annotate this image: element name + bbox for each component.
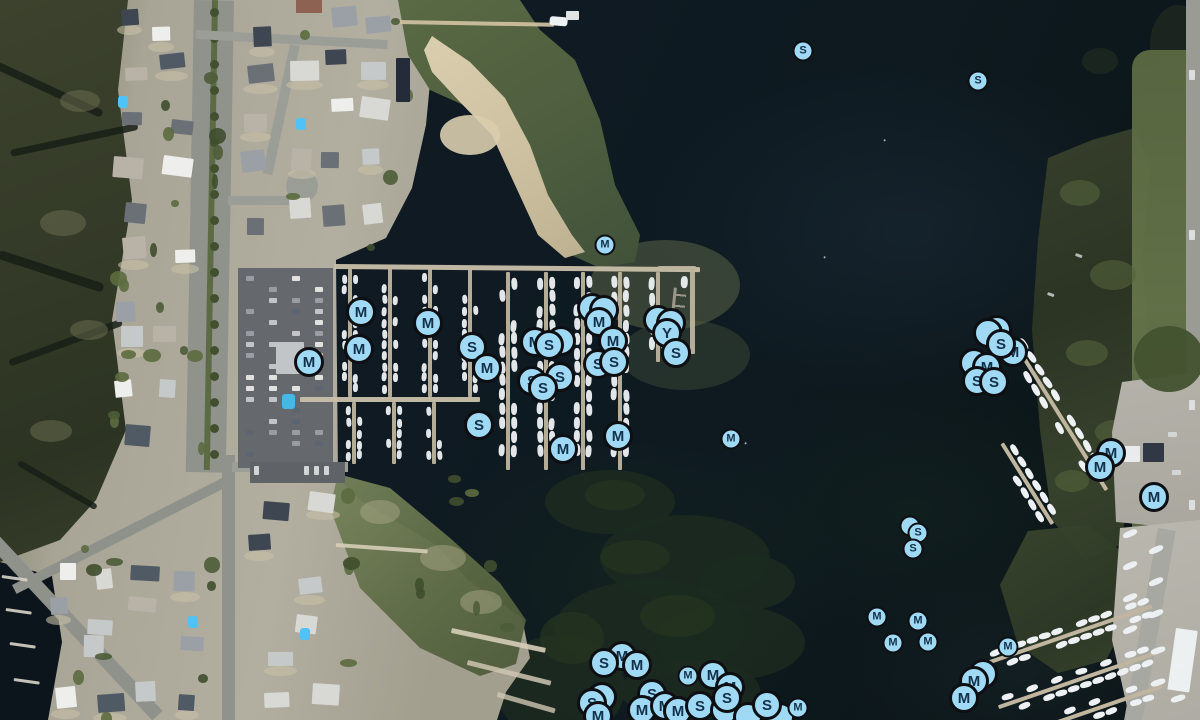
tree	[341, 488, 355, 504]
boat	[623, 277, 630, 289]
map-marker-m[interactable]: M	[949, 683, 979, 713]
dock-t-head	[658, 266, 696, 270]
boat	[422, 273, 427, 282]
parked-car	[269, 397, 277, 402]
pool	[118, 96, 128, 108]
boat	[426, 451, 432, 460]
boat	[1092, 676, 1105, 686]
pool	[296, 118, 306, 130]
boat	[397, 429, 402, 438]
boat	[1129, 698, 1142, 707]
map-marker-s[interactable]: S	[968, 71, 989, 92]
parked-car	[246, 452, 254, 457]
satellite-map[interactable]: SSMMMMMSMSMSSSSMMSSYSMMMMSMSSMMMSSMMMMMM…	[0, 0, 1200, 720]
tree	[171, 200, 179, 207]
tree	[343, 557, 360, 570]
boat	[1018, 653, 1031, 662]
parked-car	[315, 309, 323, 314]
seagrass-patch	[700, 555, 795, 610]
boat	[437, 451, 443, 460]
dock	[506, 272, 510, 470]
house	[112, 156, 143, 179]
boat	[1067, 636, 1080, 645]
house	[125, 67, 147, 81]
map-marker-s[interactable]: S	[589, 648, 619, 678]
house	[247, 218, 264, 235]
house	[248, 533, 271, 551]
boat	[342, 330, 347, 339]
spit-sand-top	[440, 115, 500, 155]
boat	[537, 278, 543, 290]
map-marker-m[interactable]: M	[1139, 482, 1169, 512]
map-marker-s[interactable]: S	[534, 330, 564, 360]
parked-car	[315, 320, 323, 325]
boat	[1116, 667, 1129, 677]
tree	[473, 601, 481, 616]
parked-car	[315, 386, 323, 391]
parked-car	[1168, 432, 1177, 437]
parked-car	[292, 430, 300, 435]
dock-walkway	[300, 397, 480, 402]
boat	[386, 406, 391, 415]
median-tree	[210, 268, 219, 277]
parked-car	[292, 441, 300, 446]
house	[331, 98, 354, 112]
boat	[426, 429, 431, 438]
boat	[353, 275, 358, 284]
house	[131, 565, 161, 582]
yard-sand	[148, 42, 174, 52]
dock	[432, 402, 436, 464]
house	[121, 9, 139, 26]
parked-car	[246, 397, 254, 402]
boat	[437, 440, 442, 449]
boat	[499, 374, 506, 386]
parked-car	[1189, 230, 1195, 240]
yard-sand	[155, 71, 188, 81]
trees-right	[1134, 326, 1200, 392]
house	[362, 203, 383, 225]
house	[55, 685, 77, 708]
house	[87, 619, 113, 636]
house	[321, 152, 339, 168]
marsh-dry-patch	[30, 420, 72, 442]
boat	[611, 276, 618, 288]
boat	[357, 430, 362, 439]
map-marker-m[interactable]: M	[595, 235, 616, 256]
parked-car	[292, 309, 300, 314]
map-marker-m[interactable]: M	[622, 650, 652, 680]
house	[253, 27, 272, 47]
boat	[382, 362, 388, 371]
median-tree	[210, 294, 219, 303]
parked-car	[315, 287, 323, 292]
house	[174, 571, 196, 592]
boat	[382, 385, 387, 394]
boat	[574, 417, 580, 429]
parked-car	[315, 298, 323, 303]
map-marker-m[interactable]: M	[998, 637, 1019, 658]
house	[152, 27, 170, 42]
house	[128, 596, 157, 613]
tree	[115, 372, 129, 382]
house	[50, 596, 68, 614]
tree	[391, 18, 400, 26]
boat	[1105, 706, 1118, 716]
parked-car	[292, 276, 300, 281]
tree	[213, 145, 223, 160]
boat	[433, 340, 438, 349]
boat	[623, 305, 630, 317]
boat	[357, 441, 362, 450]
map-marker-m[interactable]: M	[788, 698, 809, 719]
tree	[86, 564, 102, 577]
map-marker-m[interactable]: M	[294, 347, 324, 377]
boat	[426, 406, 432, 415]
median-tree	[210, 398, 219, 407]
boat	[473, 384, 478, 393]
boat	[511, 431, 517, 443]
house	[180, 636, 203, 651]
tree	[209, 128, 226, 144]
parked-car	[246, 430, 254, 435]
boat	[462, 295, 468, 304]
dock	[388, 269, 392, 397]
median-tree	[210, 190, 219, 199]
house	[263, 501, 290, 521]
median-tree	[210, 242, 219, 251]
house	[175, 250, 196, 264]
parked-car	[269, 320, 277, 325]
house	[159, 379, 177, 398]
boat	[462, 361, 467, 370]
marsh-dry-patch	[70, 320, 108, 340]
boat	[549, 304, 556, 316]
boat	[623, 290, 629, 302]
boat	[1006, 657, 1019, 667]
boat	[1067, 684, 1080, 693]
boat	[393, 362, 398, 371]
tree	[500, 623, 515, 631]
tree	[156, 302, 164, 313]
parked-car	[292, 331, 300, 336]
yard-sand	[240, 132, 271, 142]
boat	[511, 417, 517, 429]
seagrass-patch	[640, 595, 715, 637]
map-marker-m[interactable]: M	[346, 297, 376, 327]
marsh-top-right	[1082, 48, 1118, 74]
parked-car	[246, 353, 254, 358]
boat	[574, 318, 580, 330]
boat	[1092, 711, 1105, 720]
parked-car	[269, 419, 277, 424]
boat	[397, 406, 402, 415]
boat	[537, 430, 544, 442]
parked-car	[269, 386, 277, 391]
boat	[574, 348, 580, 360]
map-marker-m[interactable]: M	[678, 666, 699, 687]
map-marker-s[interactable]: S	[979, 367, 1009, 397]
parked-car	[1189, 70, 1195, 80]
boat	[342, 274, 347, 283]
marsh-grass-patch	[1090, 260, 1136, 290]
tree	[161, 100, 170, 112]
tree	[204, 72, 217, 83]
boat	[586, 430, 593, 442]
house	[244, 113, 267, 131]
tree	[212, 174, 218, 189]
boat	[499, 388, 505, 400]
tree	[416, 588, 425, 598]
boat	[393, 340, 398, 349]
boat	[623, 389, 630, 401]
yard-sand	[175, 710, 199, 720]
map-marker-m[interactable]: M	[472, 353, 502, 383]
tree	[101, 712, 111, 720]
boat	[342, 372, 347, 381]
dark-building	[396, 58, 410, 102]
yard-sand	[170, 592, 199, 602]
median-tree	[210, 164, 219, 173]
house	[97, 693, 125, 713]
boat	[536, 306, 543, 318]
boat	[586, 390, 592, 402]
boat	[537, 445, 544, 457]
house	[122, 112, 142, 125]
boat	[393, 296, 398, 305]
house	[365, 15, 391, 33]
map-marker-m[interactable]: M	[603, 421, 633, 451]
boat	[1104, 671, 1117, 681]
house	[322, 204, 346, 226]
tree	[121, 350, 136, 359]
map-marker-s[interactable]: S	[661, 338, 691, 368]
parking-lot	[250, 462, 345, 483]
tree	[300, 30, 310, 40]
map-marker-m[interactable]: M	[548, 434, 578, 464]
boat	[1018, 701, 1031, 711]
map-marker-m[interactable]: M	[908, 611, 929, 632]
median-tree	[210, 424, 219, 433]
yard-sand	[357, 80, 390, 90]
map-marker-s[interactable]: S	[752, 690, 782, 720]
median-tree	[210, 320, 219, 329]
boat	[1092, 627, 1105, 636]
map-marker-s[interactable]: S	[528, 373, 558, 403]
parked-car	[269, 375, 277, 380]
seagrass-patch	[585, 480, 645, 510]
house	[135, 681, 156, 702]
pool	[300, 628, 310, 640]
boat	[422, 339, 427, 348]
boat	[462, 372, 467, 381]
shore-sand	[360, 500, 400, 524]
dock	[392, 402, 396, 464]
house	[178, 694, 195, 711]
median-tree	[210, 112, 219, 121]
tree	[187, 350, 203, 362]
boat	[433, 285, 438, 294]
boat	[1055, 640, 1068, 650]
boat	[386, 439, 391, 448]
median-tree	[210, 450, 219, 459]
driveway-red	[296, 0, 322, 13]
parked-car	[324, 466, 329, 475]
median-tree	[210, 372, 219, 381]
boat	[342, 362, 347, 371]
shore-sand	[460, 590, 502, 614]
parked-car	[315, 430, 323, 435]
boat	[421, 363, 427, 372]
dock	[352, 402, 356, 464]
house	[307, 491, 336, 514]
map-marker-m[interactable]: M	[1085, 452, 1115, 482]
boat	[499, 346, 506, 358]
boat	[511, 347, 518, 359]
boat	[681, 276, 688, 288]
tree	[204, 557, 219, 572]
parked-car	[315, 441, 323, 446]
boat	[381, 340, 387, 349]
house	[121, 326, 143, 347]
boat	[422, 295, 427, 304]
yard-sand	[249, 47, 275, 57]
map-marker-s[interactable]: S	[464, 410, 494, 440]
boat	[382, 295, 388, 304]
house	[116, 302, 136, 322]
boat	[353, 383, 358, 392]
parked-car	[1189, 500, 1195, 510]
marsh-grass-patch	[1060, 180, 1100, 206]
boat	[499, 416, 505, 428]
yard-sand	[358, 165, 383, 175]
boat	[353, 374, 358, 383]
house	[361, 62, 386, 80]
road-street	[228, 196, 290, 205]
map-marker-m[interactable]: M	[867, 607, 888, 628]
median-tree	[210, 346, 219, 355]
yard-sand	[264, 666, 297, 676]
seagrass-patch	[600, 540, 670, 574]
house	[290, 60, 319, 80]
house	[247, 63, 275, 84]
building-white	[1124, 446, 1140, 462]
boat	[433, 374, 438, 383]
boat	[511, 278, 518, 290]
parked-car	[1189, 400, 1195, 410]
parked-car	[246, 276, 254, 281]
house	[331, 5, 358, 28]
yard-sand	[118, 260, 149, 270]
boat	[346, 452, 351, 461]
boat	[549, 290, 556, 302]
boat	[499, 290, 506, 302]
parked-car	[315, 331, 323, 336]
boat	[574, 277, 580, 289]
map-marker-s[interactable]: S	[793, 41, 814, 62]
pool	[188, 616, 198, 628]
parked-car	[246, 342, 254, 347]
parked-car	[292, 298, 300, 303]
boat	[537, 417, 543, 429]
parked-car	[269, 430, 277, 435]
house	[122, 235, 146, 259]
boat	[1142, 694, 1155, 703]
house	[311, 683, 339, 706]
house	[264, 692, 290, 708]
boat	[623, 402, 630, 414]
house	[124, 424, 150, 447]
boat	[499, 402, 506, 414]
tree	[340, 659, 357, 667]
house	[359, 96, 391, 121]
boat	[511, 360, 518, 372]
tree	[448, 475, 461, 482]
parked-car	[254, 466, 259, 475]
parked-car	[269, 298, 277, 303]
dock	[348, 269, 352, 397]
boat	[586, 403, 592, 415]
house	[268, 651, 293, 665]
boat	[346, 418, 352, 427]
boat	[422, 384, 427, 393]
house	[289, 198, 311, 219]
house	[325, 49, 346, 65]
boat	[511, 403, 517, 415]
house	[240, 149, 266, 173]
boat	[462, 307, 467, 316]
tree	[207, 581, 216, 591]
building-dark	[1143, 443, 1164, 462]
boat	[511, 445, 517, 457]
map-marker-s[interactable]: S	[903, 539, 924, 560]
median-tree	[210, 60, 219, 69]
map-marker-m[interactable]: M	[344, 334, 374, 364]
parked-car	[246, 386, 254, 391]
boat	[1128, 663, 1141, 673]
map-marker-m[interactable]: M	[918, 632, 939, 653]
road-south	[222, 455, 235, 720]
boat	[1129, 615, 1142, 625]
boat	[1080, 632, 1093, 641]
parked-car	[269, 287, 277, 292]
boat	[1055, 689, 1068, 698]
pool	[282, 394, 295, 409]
boat	[1079, 680, 1092, 689]
parked-car	[315, 342, 323, 347]
house	[124, 202, 147, 224]
map-marker-m[interactable]: M	[883, 633, 904, 654]
map-marker-m[interactable]: M	[413, 308, 443, 338]
boat	[397, 419, 402, 428]
boat	[586, 276, 593, 288]
tree	[143, 349, 160, 362]
marsh-dry-patch	[60, 90, 100, 112]
parked-car	[246, 331, 254, 336]
boat	[574, 361, 581, 373]
parked-car	[315, 375, 323, 380]
parked-car	[246, 309, 254, 314]
house	[362, 148, 380, 165]
boat	[549, 277, 555, 289]
boat	[393, 373, 398, 382]
map-marker-m[interactable]: M	[721, 429, 742, 450]
median-tree	[210, 216, 219, 225]
house	[170, 119, 193, 135]
map-marker-s[interactable]: S	[599, 347, 629, 377]
tree	[484, 560, 496, 573]
boat	[649, 293, 655, 306]
